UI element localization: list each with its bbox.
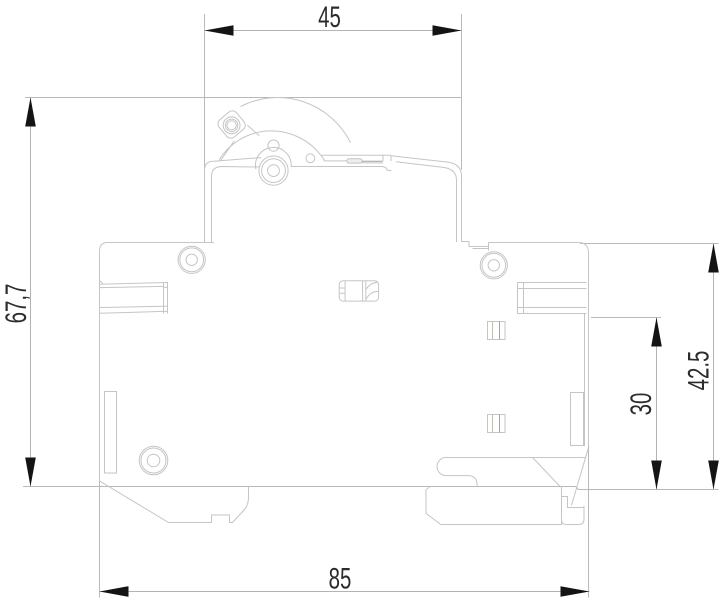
svg-text:42.5: 42.5 (683, 351, 716, 391)
svg-text:45: 45 (318, 1, 341, 34)
svg-text:85: 85 (329, 563, 352, 596)
svg-text:30: 30 (625, 393, 658, 416)
svg-text:67,7: 67,7 (0, 284, 33, 324)
